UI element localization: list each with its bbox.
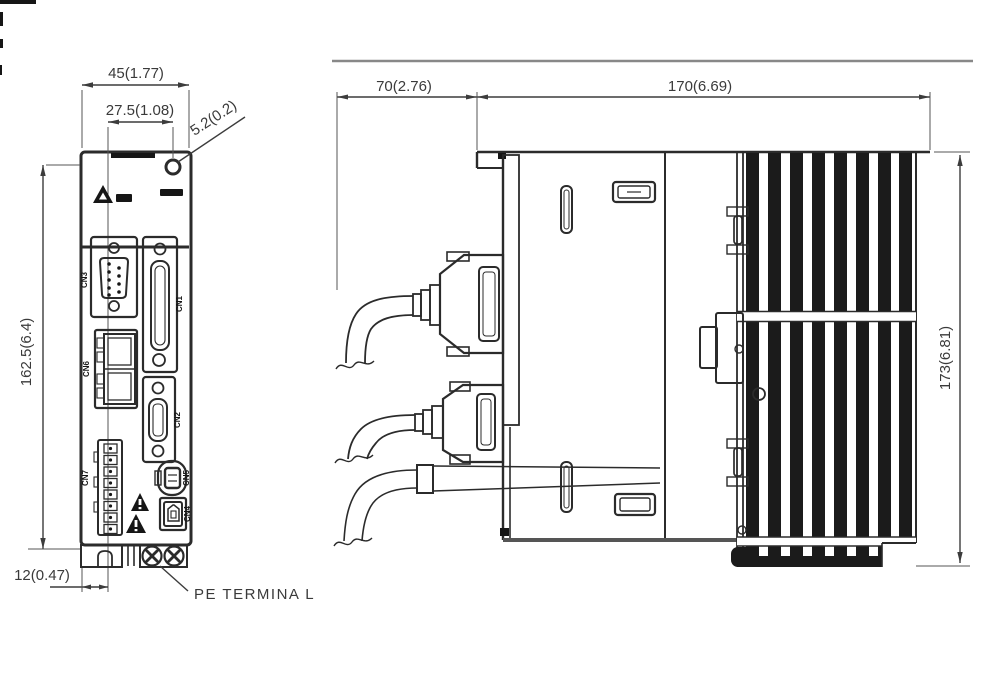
dim-clearance-70: 70(2.76) <box>337 78 477 290</box>
cn6-label: CN6 <box>82 360 91 377</box>
cn7-cells <box>104 444 117 534</box>
pe-screw-icon <box>143 547 162 566</box>
front-bezel-strip <box>503 155 519 425</box>
cable3 <box>344 470 417 541</box>
cn3-pins <box>107 262 121 297</box>
dim-width-text: 45(1.77) <box>108 65 164 82</box>
scan-artifacts <box>0 0 973 75</box>
connector-cn4-usb: CN4 <box>160 498 192 530</box>
connector-cn1: CN1 <box>143 237 184 372</box>
heatsink <box>700 152 916 567</box>
bracket-block <box>716 313 743 383</box>
cn5-inner <box>165 468 180 488</box>
connector-cn5: CN5 <box>155 461 191 495</box>
dim-height-162-5: 162.5(6.4) <box>18 165 80 549</box>
cable1-break <box>336 361 374 369</box>
wire-bottom <box>433 483 660 491</box>
connector-cn7-terminal-strip: CN7 <box>81 440 122 535</box>
cn3-screw-bottom <box>109 301 119 311</box>
vent-opening <box>615 494 655 515</box>
pe-screw-icon <box>165 547 184 566</box>
bottom-mount-area <box>81 545 187 567</box>
cn7-label: CN7 <box>81 469 90 486</box>
cable-plug-2 <box>335 382 503 464</box>
plug2-strain-relief <box>415 406 443 438</box>
warning-triangle-icons <box>126 493 149 533</box>
cn3-dsub-shell <box>100 258 128 298</box>
cn6-port-top <box>108 338 131 365</box>
cable-3-wires <box>334 465 660 546</box>
model-text-block <box>160 189 183 196</box>
pe-terminal-label: PE TERMINA L <box>194 586 315 603</box>
cable1 <box>346 296 413 363</box>
cn2-label: CN2 <box>173 411 182 428</box>
dim-depth-text: 170(6.69) <box>668 78 732 95</box>
bracket-slot <box>734 216 742 244</box>
dim-clearance-text: 70(2.76) <box>376 78 432 95</box>
cn4-label: CN4 <box>183 505 192 522</box>
dim-depth-170: 170(6.69) <box>477 78 930 150</box>
cable-clamp <box>417 465 433 493</box>
front-view: CN3 CN1 CN6 <box>14 65 315 603</box>
cn1-slot <box>151 261 169 350</box>
bracket-slot <box>734 448 742 476</box>
cn1-label: CN1 <box>175 295 184 312</box>
cn2-screw-bottom <box>153 446 164 457</box>
drawing-canvas: CN3 CN1 CN6 <box>0 0 1000 678</box>
cable3-break <box>334 538 372 546</box>
plug1-hood <box>440 255 503 353</box>
cn2-slot <box>149 399 167 441</box>
heatsink-fins <box>746 153 912 557</box>
cn5-label: CN5 <box>182 469 191 486</box>
mount-foot-side <box>731 547 759 567</box>
cn3-label: CN3 <box>80 271 89 288</box>
cn6-port-bottom <box>108 373 131 400</box>
connector-cn2: CN2 <box>143 377 182 462</box>
brand-text-block <box>116 194 132 202</box>
dim-hole-offset-text: 27.5(1.08) <box>106 102 174 119</box>
cn1-screw-bottom <box>153 354 165 366</box>
mount-notch <box>98 551 112 567</box>
top-slot <box>111 153 155 158</box>
dim-height-side-text: 173(6.81) <box>937 326 954 390</box>
dim-notch-offset-text: 12(0.47) <box>14 567 70 584</box>
mount-foot <box>81 545 122 567</box>
dim-height-text: 162.5(6.4) <box>18 318 35 386</box>
dim-hole-diameter-text: 5.2(0.2) <box>187 97 240 139</box>
connector-cn6: CN6 <box>82 330 137 408</box>
cable-plug-1 <box>336 252 503 369</box>
dim-hole-offset-27-5: 27.5(1.08) <box>106 102 174 158</box>
vent-slot <box>561 186 572 233</box>
pe-leader-line <box>160 566 188 591</box>
side-view: 70(2.76) 170(6.69) 173(6.81) <box>334 78 970 567</box>
dim-notch-offset-12: 12(0.47) <box>14 567 108 592</box>
cn1-screw-top <box>155 244 166 255</box>
plug1-face <box>479 267 499 341</box>
dimension-drawing-svg: CN3 CN1 CN6 <box>0 0 1000 678</box>
cn2-screw-top <box>153 383 164 394</box>
plug2-face <box>477 394 495 450</box>
wire-top <box>433 466 660 468</box>
mounting-hole-icon <box>166 160 180 174</box>
plug1-strain-relief <box>413 285 440 325</box>
